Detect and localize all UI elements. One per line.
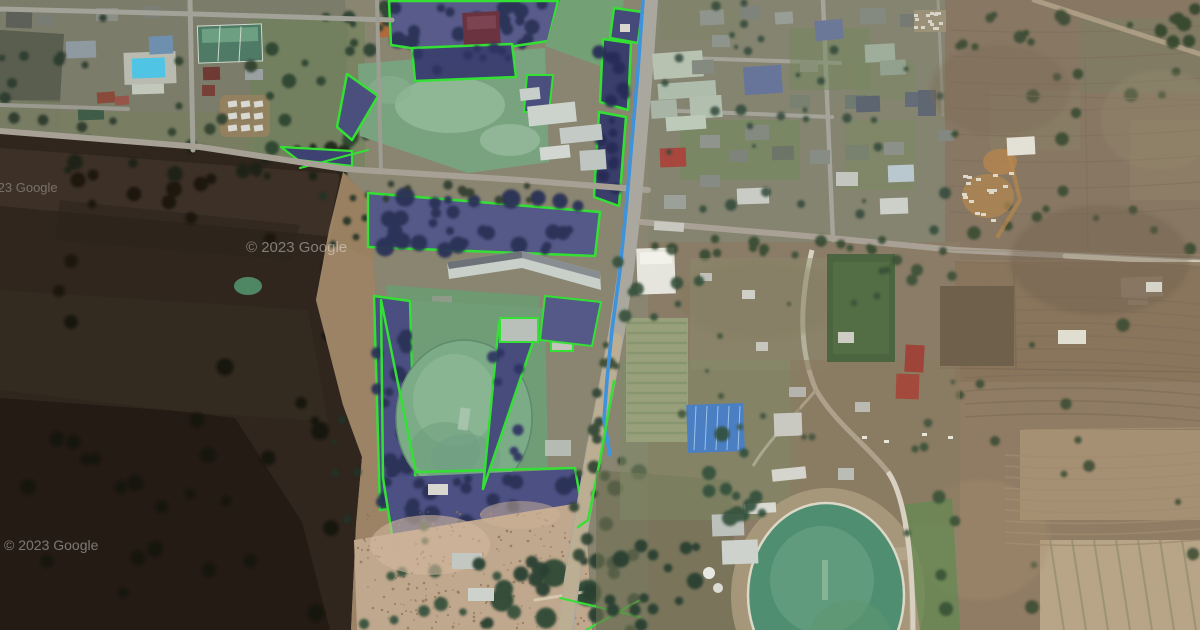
svg-text:© 2023 Google: © 2023 Google bbox=[246, 239, 347, 256]
svg-text:© 2023 Google: © 2023 Google bbox=[0, 180, 58, 195]
svg-text:© 2023 Google: © 2023 Google bbox=[4, 537, 99, 553]
